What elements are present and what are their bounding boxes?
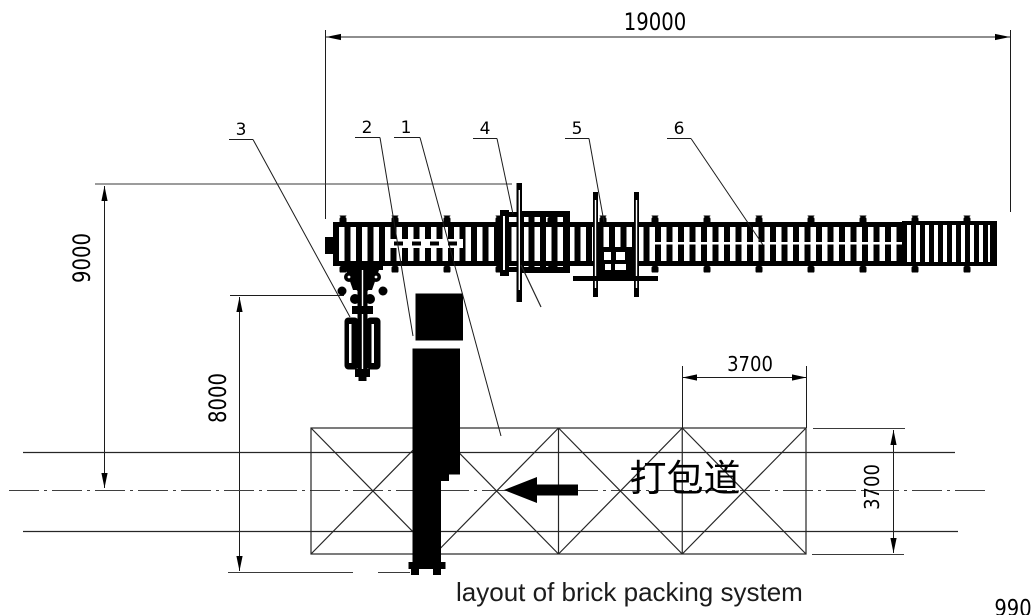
dim-text-lane-3700: 3700 (861, 464, 884, 510)
callout-label: 4 (480, 119, 491, 139)
packer-gap (414, 341, 463, 349)
dimension-lane-3700: 3700 (812, 429, 905, 555)
packer-foot (433, 569, 441, 575)
callout-label: 1 (401, 118, 412, 138)
dim-arrowhead-up-icon (101, 186, 107, 201)
mechanism-window (616, 252, 625, 260)
roller-journals-bottom (333, 266, 993, 273)
dim-text-overall-length: 19000 (624, 9, 687, 36)
dim-text-9000: 9000 (69, 233, 96, 283)
conveyor-left-drive (325, 237, 333, 254)
callout-leader (497, 139, 513, 215)
gripper-tip-pad (359, 377, 367, 381)
flow-arrow-left-icon (504, 477, 578, 503)
dim-text-8000: 8000 (205, 373, 232, 423)
gripper-collar (352, 306, 373, 314)
dim-arrowhead-up-icon (890, 430, 896, 445)
dim-text-bay-3700: 3700 (727, 353, 773, 376)
dim-arrowhead-down-icon (101, 473, 107, 488)
packer-chute (413, 474, 442, 562)
drawing-caption: layout of brick packing system (456, 577, 803, 607)
linkage-roller (379, 287, 388, 296)
callout-3: 3 (229, 120, 350, 317)
mast-slot (636, 200, 637, 288)
callout-label: 3 (236, 120, 247, 140)
linkage-roller (338, 287, 347, 296)
drawing-canvas: 19000 9000 8000 3700 3700 (0, 0, 1036, 615)
mechanism-window (605, 264, 611, 270)
mechanism-window (615, 264, 626, 270)
jaw-slot (349, 324, 352, 363)
conveyor-right-end (990, 221, 997, 266)
dim-arrowhead-down-icon (890, 538, 896, 553)
outfeed-rail-bottom (902, 262, 993, 266)
outfeed-section (902, 221, 993, 266)
jaw-slot (372, 324, 375, 363)
gripper-unit (338, 262, 388, 381)
callout-label: 6 (674, 119, 685, 139)
conveyor-rail-bottom (333, 261, 997, 266)
packer-foot (411, 569, 419, 575)
dimension-bay-3700: 3700 (683, 353, 807, 428)
callout-4: 4 (473, 119, 513, 214)
roller-pin (375, 276, 378, 279)
lower-mechanism (598, 247, 634, 277)
cad-sheet: 19000 9000 8000 3700 3700 (0, 0, 1036, 615)
conveyor-rail-top (333, 222, 997, 227)
dimension-overall-length: 19000 (326, 9, 1011, 219)
transfer-deck (389, 239, 463, 248)
turntable-deck (523, 212, 569, 272)
dim-arrowhead-left-icon (326, 34, 341, 40)
side-plate-slot (503, 216, 505, 270)
packer-base (409, 562, 446, 569)
callout-label: 2 (362, 118, 373, 138)
roller-journals-top (333, 216, 993, 223)
dim-arrowhead-left-icon (683, 374, 698, 380)
mechanism-window (604, 252, 611, 260)
packer-head (416, 294, 464, 341)
shaft-slot (362, 270, 363, 370)
gripper-tip (355, 369, 370, 377)
packer-body (413, 349, 461, 475)
lane-label: 打包道 (630, 457, 741, 500)
dim-arrowhead-down-icon (236, 556, 242, 571)
callout-5: 5 (565, 119, 604, 222)
roller-pin (348, 276, 351, 279)
flange-bottom (507, 267, 567, 272)
outfeed-rail-top (902, 221, 993, 225)
dim-arrowhead-up-icon (236, 297, 242, 312)
flange-top (507, 212, 567, 217)
callout-label: 5 (572, 119, 583, 139)
roller-conveyor (325, 216, 997, 273)
packer-machine (378, 294, 463, 576)
dim-arrowhead-right-icon (792, 374, 807, 380)
dim-arrowhead-right-icon (995, 34, 1010, 40)
sheet-number: 990 (994, 596, 1031, 615)
mast-slot (519, 190, 520, 290)
mast-slot (595, 200, 596, 288)
